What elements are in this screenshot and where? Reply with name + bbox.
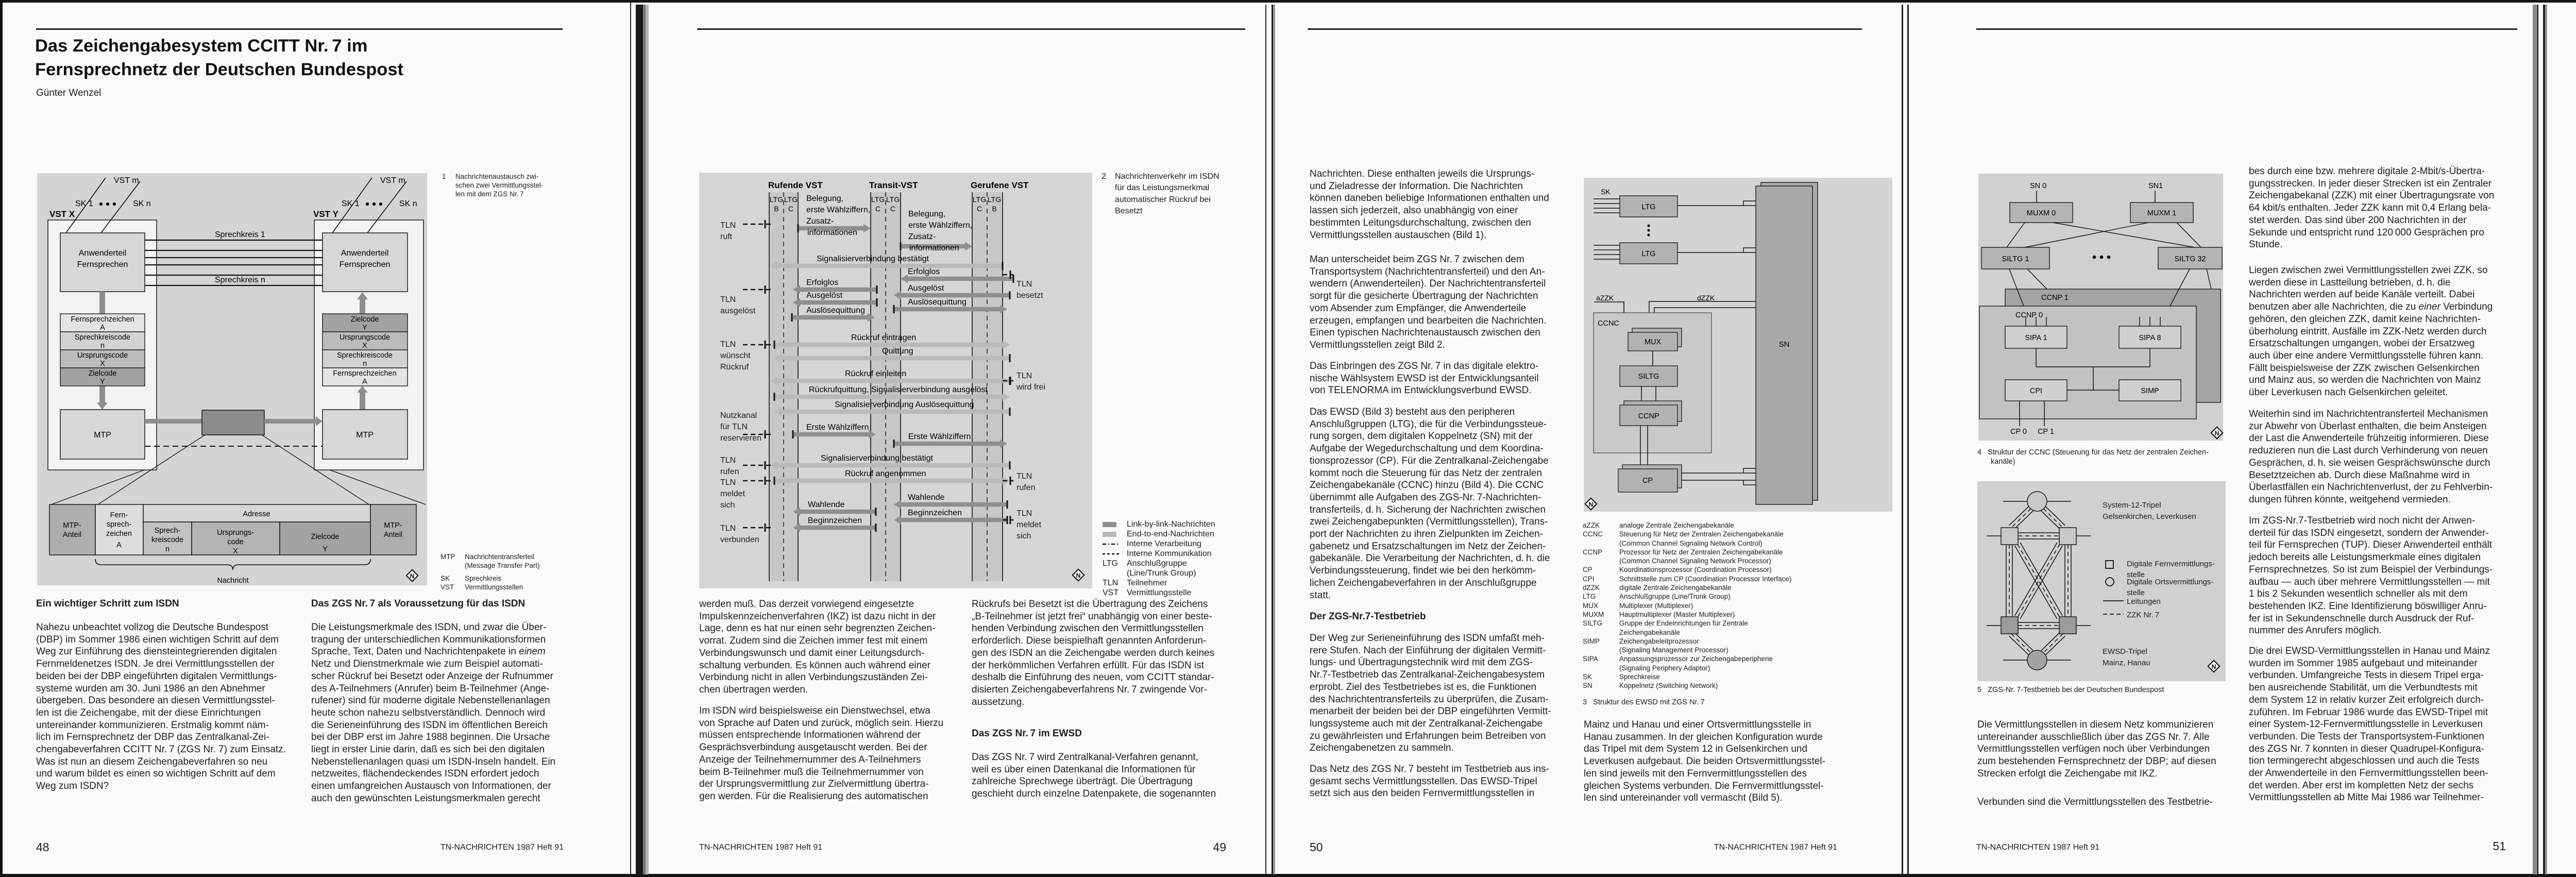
svg-text:Fernsprechzeichen: Fernsprechzeichen: [71, 315, 134, 324]
svg-text:Signalisierverbindung Auslöseq: Signalisierverbindung Auslösequittung: [835, 400, 974, 409]
svg-text:C: C: [977, 205, 982, 213]
svg-text:Y: Y: [323, 545, 328, 553]
svg-text:VST Y: VST Y: [313, 209, 338, 219]
svg-text:Zielcode: Zielcode: [311, 533, 340, 541]
svg-text:Sprechkreis n: Sprechkreis n: [215, 276, 265, 284]
svg-text:CCNP: CCNP: [1638, 412, 1659, 420]
svg-text:B: B: [992, 205, 996, 213]
svg-text:A: A: [116, 541, 122, 549]
svg-text:informationen: informationen: [807, 228, 857, 237]
svg-text:Fernsprechen: Fernsprechen: [340, 260, 391, 269]
svg-text:C: C: [788, 205, 793, 213]
svg-text:CCNC: CCNC: [1598, 319, 1619, 328]
svg-text:Beginnzeichen: Beginnzeichen: [808, 516, 862, 525]
svg-text:erste Wählziffern,: erste Wählziffern,: [806, 206, 870, 214]
svg-text:Sprechkreiscode: Sprechkreiscode: [337, 351, 393, 360]
svg-text:Anwenderteil: Anwenderteil: [341, 249, 389, 258]
svg-text:MUXM 1: MUXM 1: [2147, 209, 2176, 217]
svg-text:Rückruf angenommen: Rückruf angenommen: [845, 469, 926, 478]
svg-text:VST m: VST m: [380, 176, 405, 185]
svg-text:CCNP 0: CCNP 0: [2015, 311, 2043, 319]
svg-text:Zielcode: Zielcode: [351, 315, 379, 324]
svg-text:SIPA 1: SIPA 1: [2025, 334, 2047, 342]
svg-text:Rückrufquittung, Signalisierve: Rückrufquittung, Signalisierverbindung a…: [809, 385, 988, 394]
svg-text:Fern-: Fern-: [110, 511, 128, 519]
svg-text:Wahlende: Wahlende: [808, 500, 845, 509]
svg-text:Auslösequittung: Auslösequittung: [806, 306, 865, 315]
svg-text:Adresse: Adresse: [243, 510, 270, 518]
svg-text:N: N: [1589, 501, 1594, 508]
svg-text:CP 1: CP 1: [2038, 428, 2054, 436]
svg-text:SILTG 32: SILTG 32: [2175, 255, 2206, 263]
svg-text:N: N: [2212, 663, 2216, 670]
svg-text:Zielcode: Zielcode: [89, 369, 117, 378]
svg-text:Signalisierverbindung bestätig: Signalisierverbindung bestätigt: [821, 454, 933, 463]
svg-text:Erfolglos: Erfolglos: [908, 267, 940, 276]
svg-text:Ursprungscode: Ursprungscode: [340, 333, 390, 342]
svg-text:SILTG 1: SILTG 1: [2002, 255, 2029, 263]
svg-text:Rufende VST: Rufende VST: [768, 180, 823, 190]
svg-text:SN: SN: [1779, 340, 1790, 349]
svg-text:A: A: [100, 324, 105, 332]
svg-text:CCNP 1: CCNP 1: [2041, 294, 2069, 302]
svg-text:erste Wählziffern,: erste Wählziffern,: [908, 221, 972, 230]
svg-text:SK n: SK n: [399, 199, 417, 208]
svg-text:Sprechkreiscode: Sprechkreiscode: [75, 333, 130, 342]
svg-text:code: code: [227, 538, 243, 546]
svg-text:Auslösequittung: Auslösequittung: [908, 298, 967, 307]
svg-text:informationen: informationen: [909, 244, 959, 252]
svg-text:X: X: [233, 547, 238, 555]
svg-text:LTG: LTG: [1641, 250, 1655, 258]
svg-text:Ausgelöst: Ausgelöst: [908, 284, 944, 293]
svg-text:SN1: SN1: [2148, 182, 2163, 190]
svg-text:Belegung,: Belegung,: [806, 194, 843, 203]
svg-text:Anwenderteil: Anwenderteil: [79, 249, 127, 258]
svg-text:CP: CP: [1642, 477, 1653, 485]
svg-text:Wahlende: Wahlende: [908, 493, 945, 502]
svg-text:VST X: VST X: [49, 209, 75, 219]
svg-text:Erste Wählziffern: Erste Wählziffern: [806, 423, 869, 432]
svg-text:N: N: [1076, 572, 1081, 579]
svg-text:LTG: LTG: [1641, 203, 1655, 211]
svg-text:Quittung: Quittung: [882, 347, 913, 356]
svg-text:Rückruf einleiten: Rückruf einleiten: [845, 369, 906, 378]
svg-text:Ursprungs-: Ursprungs-: [217, 529, 254, 537]
svg-text:SIMP: SIMP: [2141, 387, 2159, 395]
svg-text:N: N: [410, 572, 415, 580]
svg-text:LTG: LTG: [784, 195, 798, 204]
svg-text:LTG: LTG: [973, 195, 986, 204]
svg-text:VST m: VST m: [114, 176, 139, 185]
svg-text:zeichen: zeichen: [106, 530, 132, 538]
svg-text:Y: Y: [362, 324, 367, 332]
svg-text:MUX: MUX: [1645, 338, 1662, 346]
svg-text:n: n: [165, 545, 170, 553]
svg-text:X: X: [100, 360, 105, 368]
svg-text:Y: Y: [100, 378, 105, 386]
svg-text:MTP-: MTP-: [384, 521, 402, 530]
svg-text:Anteil: Anteil: [384, 531, 402, 539]
svg-text:N: N: [2215, 430, 2219, 437]
svg-text:Rückruf eintragen: Rückruf eintragen: [851, 333, 916, 342]
svg-text:CPI: CPI: [2030, 387, 2042, 395]
svg-text:B: B: [774, 205, 778, 213]
svg-text:Transit-VST: Transit-VST: [869, 180, 918, 190]
svg-text:Signalisierverbindung bestätig: Signalisierverbindung bestätigt: [817, 255, 929, 263]
svg-text:Gerufene VST: Gerufene VST: [971, 180, 1029, 190]
svg-text:aZZK: aZZK: [1596, 294, 1614, 302]
svg-text:LTG: LTG: [770, 195, 783, 204]
svg-text:Beginnzeichen: Beginnzeichen: [908, 509, 962, 517]
svg-text:dZZK: dZZK: [1697, 294, 1715, 302]
svg-text:Sprechkreis 1: Sprechkreis 1: [215, 230, 265, 239]
svg-text:X: X: [362, 342, 367, 350]
svg-text:kreiscode: kreiscode: [151, 536, 183, 544]
svg-text:n: n: [100, 342, 105, 350]
svg-text:SIPA 8: SIPA 8: [2139, 334, 2161, 342]
svg-text:Erfolglos: Erfolglos: [806, 278, 838, 287]
svg-text:sprech-: sprech-: [107, 520, 132, 529]
svg-text:Ursprungscode: Ursprungscode: [77, 351, 128, 360]
svg-text:CP 0: CP 0: [2010, 428, 2027, 436]
svg-text:C: C: [890, 205, 895, 213]
svg-text:Belegung,: Belegung,: [908, 210, 945, 218]
svg-text:MTP: MTP: [94, 431, 111, 440]
svg-text:Ausgelöst: Ausgelöst: [806, 291, 843, 300]
svg-text:SN 0: SN 0: [2030, 182, 2046, 190]
svg-text:LTG: LTG: [886, 195, 900, 204]
svg-text:SK: SK: [1601, 188, 1611, 196]
svg-text:Fernsprechzeichen: Fernsprechzeichen: [333, 369, 396, 378]
svg-text:SK n: SK n: [133, 199, 151, 208]
svg-text:Sprech-: Sprech-: [155, 527, 181, 535]
svg-text:A: A: [362, 378, 367, 386]
svg-text:LTG: LTG: [988, 195, 1001, 204]
svg-text:Anteil: Anteil: [63, 531, 81, 539]
svg-text:MTP: MTP: [356, 431, 374, 440]
svg-text:MUXM 0: MUXM 0: [2027, 209, 2056, 217]
svg-text:Fernsprechen: Fernsprechen: [77, 260, 128, 269]
svg-text:n: n: [363, 360, 367, 368]
svg-text:Nachricht: Nachricht: [217, 577, 248, 585]
svg-text:LTG: LTG: [871, 195, 885, 204]
svg-text:SILTG: SILTG: [1638, 373, 1659, 381]
svg-text:Zusatz-: Zusatz-: [806, 217, 834, 226]
svg-text:MTP-: MTP-: [63, 521, 81, 530]
svg-text:Erste Wählziffern: Erste Wählziffern: [908, 432, 971, 441]
svg-text:Zusatz-: Zusatz-: [908, 232, 936, 241]
svg-text:C: C: [875, 205, 880, 213]
